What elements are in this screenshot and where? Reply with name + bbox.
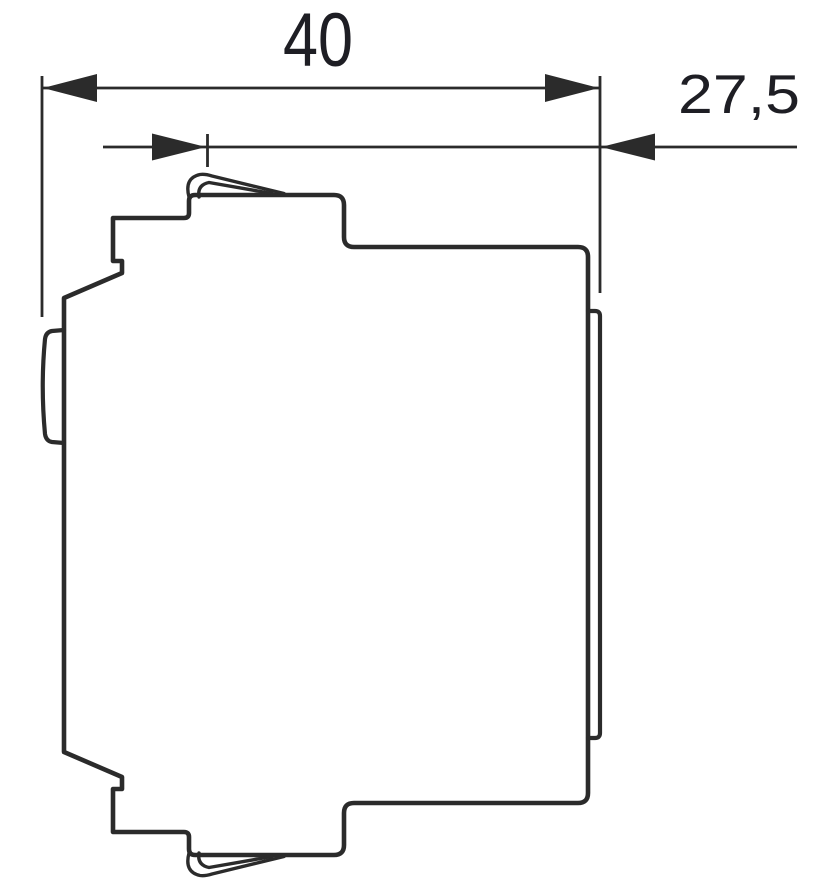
dimension-drawing-svg: 40 27,5 (0, 0, 821, 887)
device-side-view (43, 174, 600, 875)
dimension-width-label: 40 (283, 0, 353, 83)
dimension-depth: 27,5 (103, 63, 800, 167)
technical-drawing-canvas: 40 27,5 (0, 0, 821, 887)
depth-arrowhead-left (152, 134, 206, 161)
actuator-profile (43, 330, 64, 443)
dimension-depth-label: 27,5 (678, 63, 800, 125)
device-body-outline (64, 195, 588, 855)
width-arrowhead-right (545, 74, 599, 102)
depth-arrowhead-right (601, 134, 655, 161)
dimension-width: 40 (42, 0, 600, 317)
width-arrowhead-left (43, 74, 97, 102)
